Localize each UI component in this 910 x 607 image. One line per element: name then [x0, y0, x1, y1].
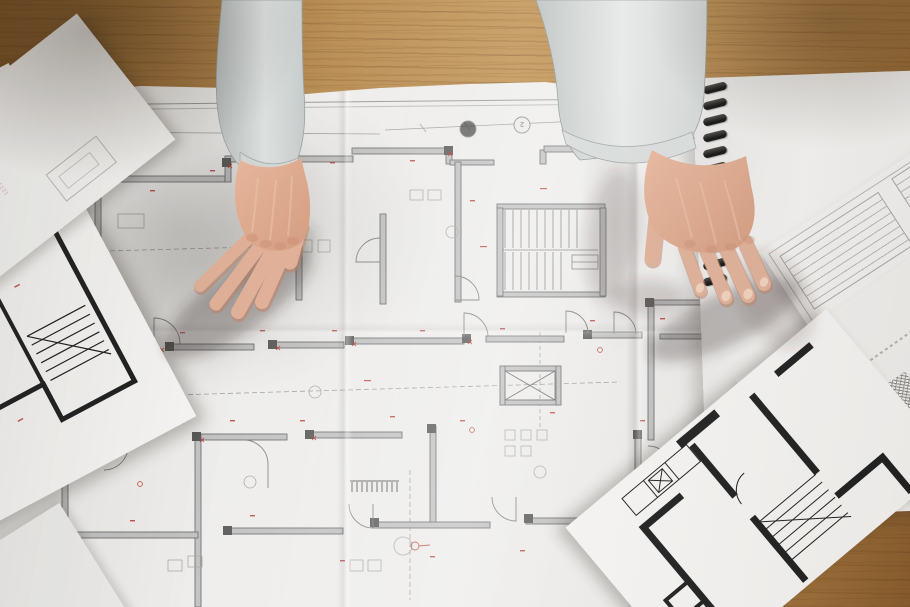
- photo-stage: Plan p… …ta Bulatov …ovya Dulatova: [0, 0, 910, 607]
- left-sleeve: [216, 0, 304, 175]
- right-sleeve: [536, 0, 707, 163]
- hands-layer: [0, 0, 910, 607]
